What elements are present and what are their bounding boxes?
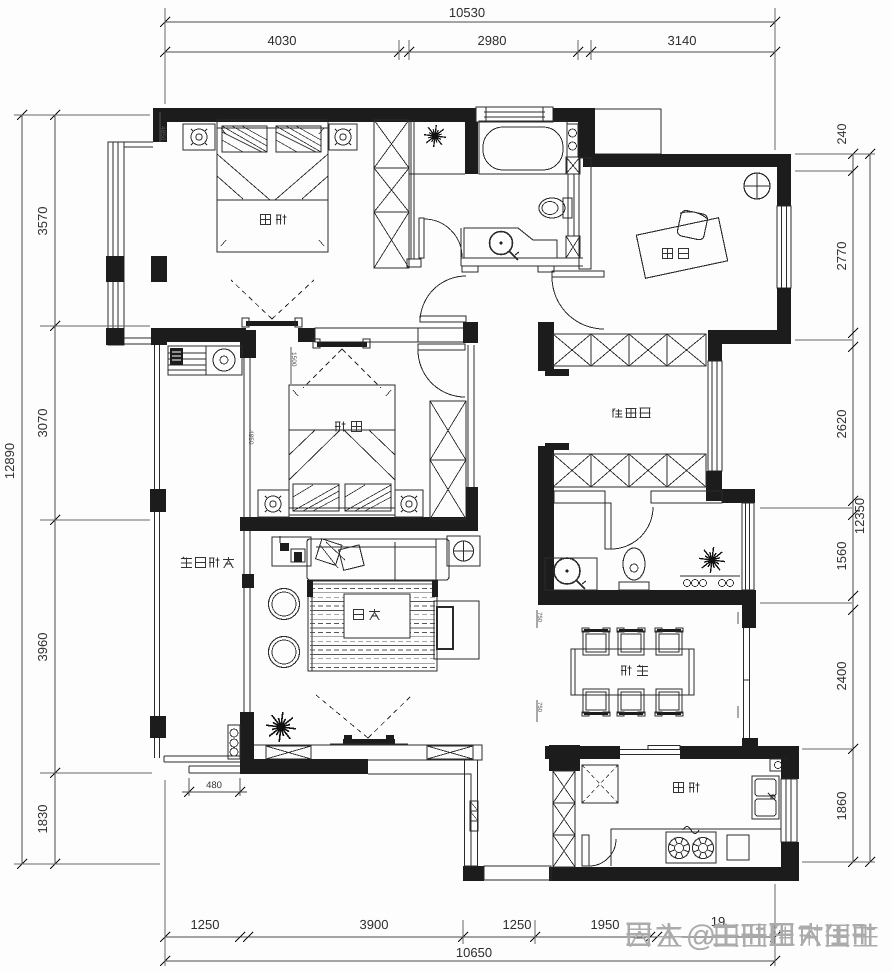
svg-text:3960: 3960 (35, 633, 50, 662)
svg-text:1830: 1830 (35, 805, 50, 834)
svg-text:1250: 1250 (503, 917, 532, 932)
svg-text:1950: 1950 (591, 917, 620, 932)
svg-text:3900: 3900 (360, 917, 389, 932)
svg-text:2400: 2400 (834, 662, 849, 691)
svg-text:1560: 1560 (834, 542, 849, 571)
svg-text:10530: 10530 (449, 5, 485, 20)
svg-text:750: 750 (536, 612, 543, 623)
svg-text:12350: 12350 (852, 498, 867, 534)
svg-text:1860: 1860 (834, 792, 849, 821)
svg-text:240: 240 (835, 124, 849, 145)
svg-text:12890: 12890 (2, 443, 17, 479)
svg-text:@: @ (686, 920, 716, 953)
svg-text:4850: 4850 (247, 430, 254, 445)
svg-text:3070: 3070 (35, 409, 50, 438)
svg-text:750: 750 (536, 702, 543, 713)
svg-text:3570: 3570 (35, 207, 50, 236)
svg-text:3140: 3140 (668, 33, 697, 48)
svg-text:480: 480 (206, 780, 222, 791)
svg-text:2620: 2620 (834, 410, 849, 439)
svg-text:1250: 1250 (191, 917, 220, 932)
svg-text:4030: 4030 (268, 33, 297, 48)
svg-text:2770: 2770 (834, 242, 849, 271)
svg-text:2980: 2980 (478, 33, 507, 48)
svg-text:10650: 10650 (456, 945, 492, 960)
